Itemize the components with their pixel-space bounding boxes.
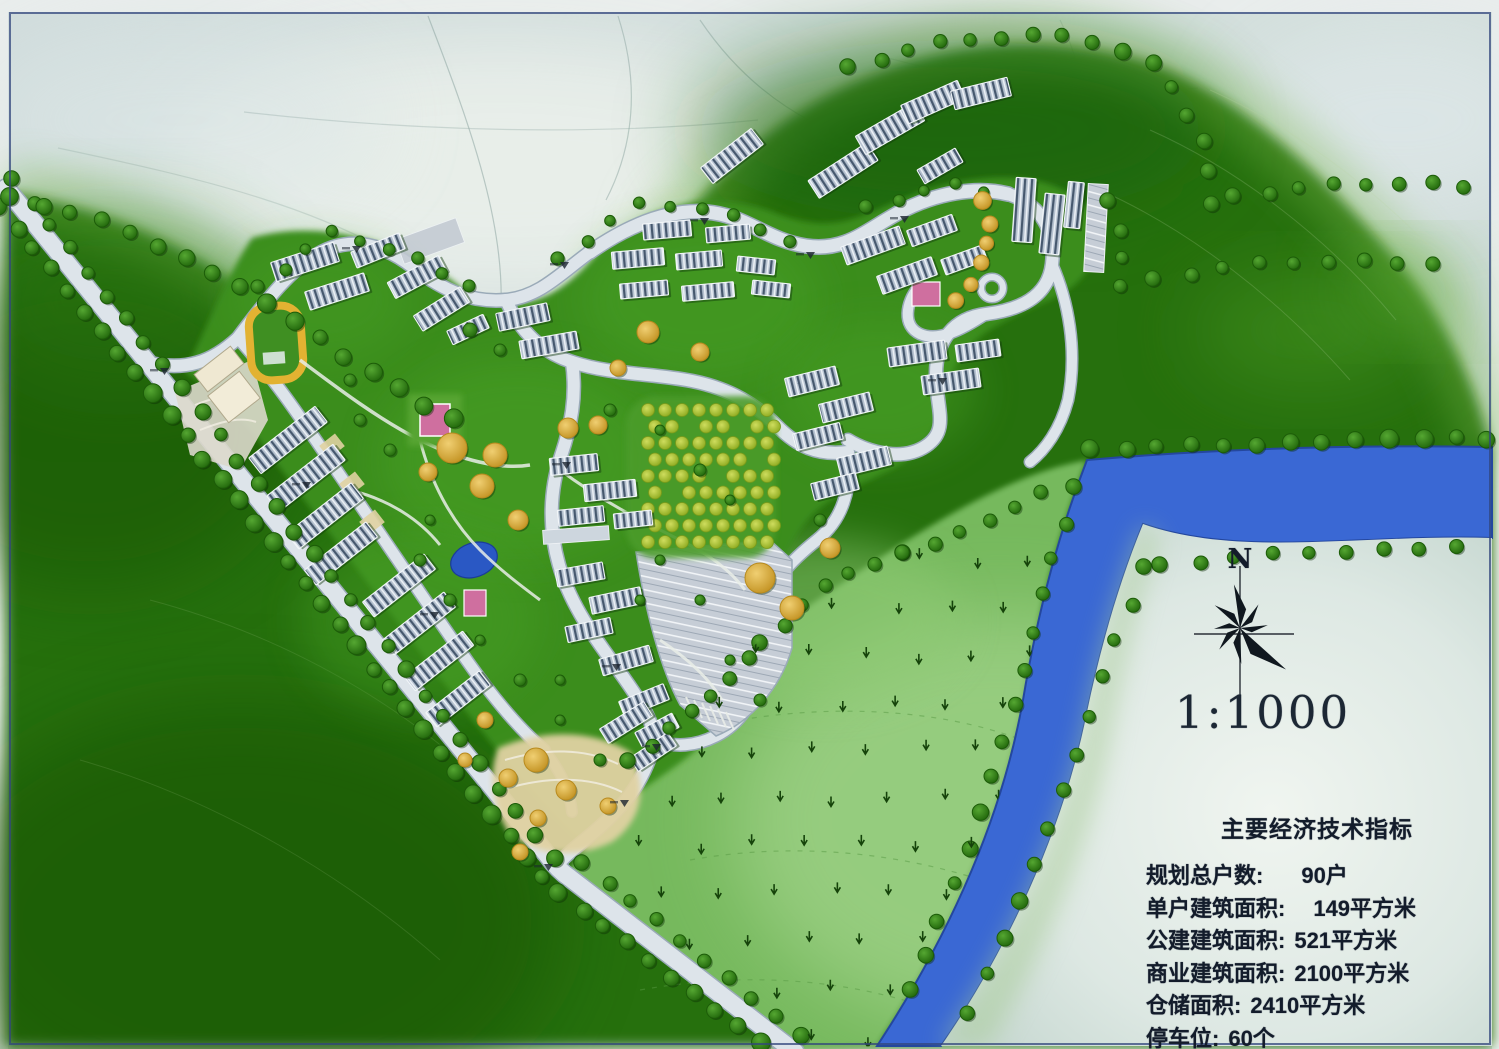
indicator-commercial-floor-area: 商业建筑面积:2100平方米: [1146, 958, 1482, 991]
indicators-title: 主要经济技术指标: [1152, 810, 1482, 844]
site-plan-photo: N 1:1000 主要经济技术指标 规划总户数:90户 单户建筑面积:149平方…: [0, 0, 1499, 1049]
north-label: N: [1222, 544, 1258, 575]
indicator-parking-spaces: 停车位:60个: [1146, 1023, 1482, 1049]
indicator-total-households: 规划总户数:90户: [1146, 860, 1482, 893]
map-scale: 1:1000: [1156, 686, 1370, 739]
indicator-unit-floor-area: 单户建筑面积:149平方米: [1146, 893, 1482, 926]
indicator-public-floor-area: 公建建筑面积:521平方米: [1146, 925, 1482, 958]
economic-indicators-panel: 主要经济技术指标 规划总户数:90户 单户建筑面积:149平方米 公建建筑面积:…: [1146, 810, 1482, 1049]
residential-building: [1012, 177, 1039, 245]
indicator-storage-area: 仓储面积:2410平方米: [1146, 990, 1482, 1023]
